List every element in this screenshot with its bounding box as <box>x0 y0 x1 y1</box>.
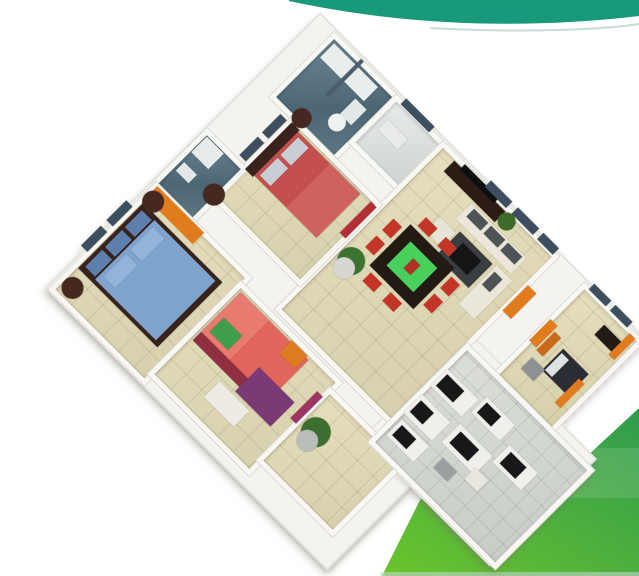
top-ribbon-shadow-line <box>430 24 639 31</box>
top-ribbon <box>289 0 639 24</box>
page <box>0 0 639 576</box>
